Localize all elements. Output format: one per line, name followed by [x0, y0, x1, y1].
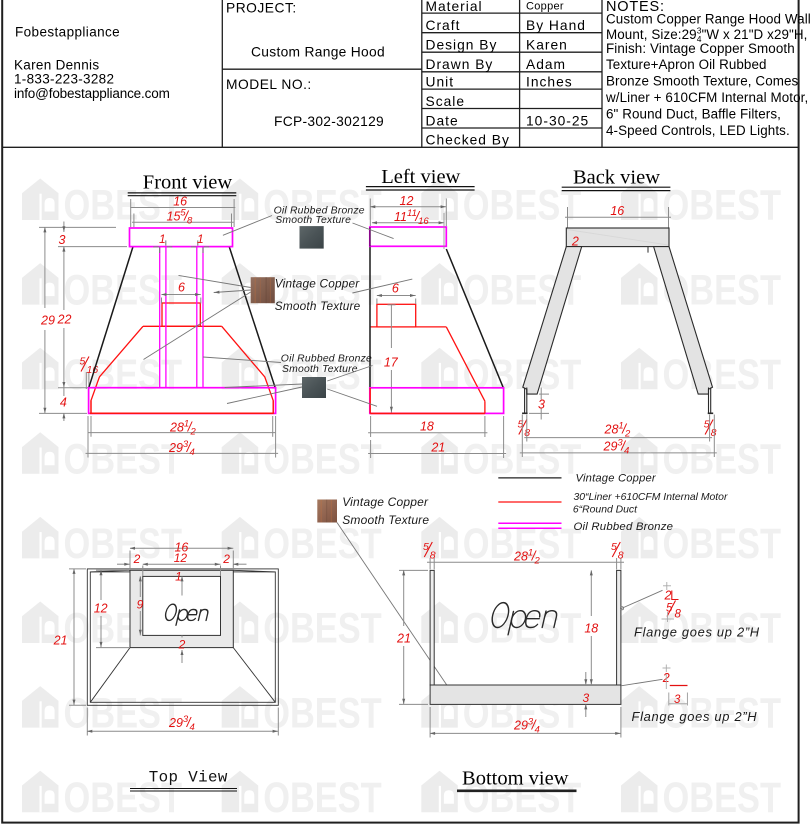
- svg-text:Unit: Unit: [426, 75, 455, 90]
- svg-text:FCP-302-302129: FCP-302-302129: [274, 114, 384, 129]
- svg-text:30“Liner +610CFM Internal Mot: 30“Liner +610CFM Internal Motor: [574, 492, 728, 503]
- svg-text:Craft: Craft: [426, 18, 461, 33]
- svg-text:Custom Range Hood: Custom Range Hood: [251, 45, 385, 60]
- svg-text:29: 29: [40, 313, 55, 327]
- svg-text:6: 6: [178, 281, 185, 295]
- svg-text:Vintage Copper: Vintage Copper: [576, 473, 657, 485]
- svg-text:4-Speed Controls, LED Lights.: 4-Speed Controls, LED Lights.: [606, 123, 790, 138]
- svg-text:22: 22: [57, 312, 72, 326]
- svg-text:12: 12: [400, 194, 414, 208]
- svg-text:Bottom view: Bottom view: [462, 768, 569, 790]
- svg-text:8: 8: [430, 550, 436, 562]
- svg-text:Karen Dennis: Karen Dennis: [14, 58, 99, 73]
- svg-text:info@fobestappliance.com: info@fobestappliance.com: [14, 86, 170, 101]
- svg-text:Back view: Back view: [573, 166, 660, 188]
- svg-text:Front view: Front view: [143, 171, 233, 193]
- svg-text:2: 2: [133, 552, 141, 566]
- svg-text:2: 2: [662, 671, 670, 685]
- svg-text:MODEL NO.:: MODEL NO.:: [226, 77, 312, 92]
- svg-text:Flange goes up 2”H: Flange goes up 2”H: [634, 624, 760, 639]
- svg-text:3: 3: [674, 694, 681, 706]
- svg-text:Inches: Inches: [526, 75, 573, 90]
- svg-text:Scale: Scale: [426, 94, 466, 109]
- svg-text:Smooth Texture: Smooth Texture: [275, 215, 351, 226]
- svg-text:4: 4: [60, 396, 67, 410]
- svg-text:2: 2: [222, 552, 230, 566]
- svg-text:8: 8: [675, 609, 682, 621]
- svg-text:3: 3: [582, 691, 589, 705]
- svg-text:18: 18: [420, 420, 434, 434]
- svg-text:Smooth Texture: Smooth Texture: [275, 299, 361, 313]
- svg-text:21: 21: [396, 631, 411, 645]
- svg-text:Finish: Vintage Copper Smooth: Finish: Vintage Copper Smooth: [606, 41, 795, 56]
- svg-text:5: 5: [423, 541, 429, 553]
- svg-text:1: 1: [175, 570, 182, 584]
- svg-text:21: 21: [53, 633, 68, 647]
- svg-text:10-30-25: 10-30-25: [526, 114, 589, 129]
- svg-text:3: 3: [59, 233, 66, 247]
- svg-text:Bronze Smooth Texture, Comes: Bronze Smooth Texture, Comes: [606, 74, 799, 89]
- svg-text:6“Round Duct: 6“Round Duct: [573, 505, 638, 516]
- svg-text:Flange goes up 2”H: Flange goes up 2”H: [632, 709, 758, 724]
- svg-text:Drawn By: Drawn By: [426, 57, 494, 72]
- svg-text:Adam: Adam: [526, 57, 566, 72]
- svg-text:Material: Material: [426, 0, 483, 14]
- svg-text:Smooth Texture: Smooth Texture: [342, 513, 429, 527]
- svg-text:1-833-223-3282: 1-833-223-3282: [14, 72, 114, 87]
- svg-text:17: 17: [384, 355, 399, 369]
- svg-text:Copper: Copper: [526, 1, 564, 13]
- svg-text:Custom Copper Range Hood Wall: Custom Copper Range Hood Wall: [606, 12, 810, 27]
- svg-text:16: 16: [610, 204, 624, 218]
- svg-text:8: 8: [618, 550, 624, 562]
- svg-text:12: 12: [174, 551, 188, 565]
- svg-text:By Hand: By Hand: [526, 18, 586, 33]
- svg-text:3: 3: [538, 398, 545, 412]
- svg-text:1: 1: [197, 232, 204, 246]
- svg-text:1: 1: [159, 232, 166, 246]
- svg-text:2: 2: [178, 637, 186, 651]
- svg-text:Oil Rubbed Bronze: Oil Rubbed Bronze: [574, 521, 674, 533]
- svg-text:5: 5: [704, 419, 710, 431]
- svg-text:9: 9: [137, 598, 144, 612]
- svg-text:Karen: Karen: [526, 38, 568, 53]
- svg-text:12: 12: [94, 602, 108, 616]
- svg-text:Checked By: Checked By: [426, 133, 510, 148]
- svg-text:21: 21: [430, 440, 445, 454]
- svg-text:Smooth Texture: Smooth Texture: [282, 364, 358, 375]
- svg-text:w/Liner + 610CFM Internal Moto: w/Liner + 610CFM Internal Motor,: [605, 90, 808, 105]
- svg-text:PROJECT:: PROJECT:: [226, 1, 297, 16]
- svg-text:Left view: Left view: [381, 166, 460, 188]
- svg-text:Top View: Top View: [149, 768, 228, 786]
- svg-text:5: 5: [611, 541, 617, 553]
- svg-text:Vintage Copper: Vintage Copper: [275, 277, 360, 291]
- svg-text:Date: Date: [426, 114, 459, 129]
- svg-text:6" Round Duct, Baffle Filters,: 6" Round Duct, Baffle Filters,: [606, 106, 781, 121]
- svg-text:2: 2: [664, 589, 672, 603]
- svg-text:Design By: Design By: [426, 38, 498, 53]
- svg-text:Oil Rubbed Bronze: Oil Rubbed Bronze: [281, 353, 372, 364]
- svg-text:Texture+Apron Oil Rubbed: Texture+Apron Oil Rubbed: [606, 57, 767, 72]
- svg-text:Vintage Copper: Vintage Copper: [342, 495, 429, 509]
- svg-text:Fobestappliance: Fobestappliance: [15, 25, 120, 40]
- svg-text:18: 18: [584, 621, 598, 635]
